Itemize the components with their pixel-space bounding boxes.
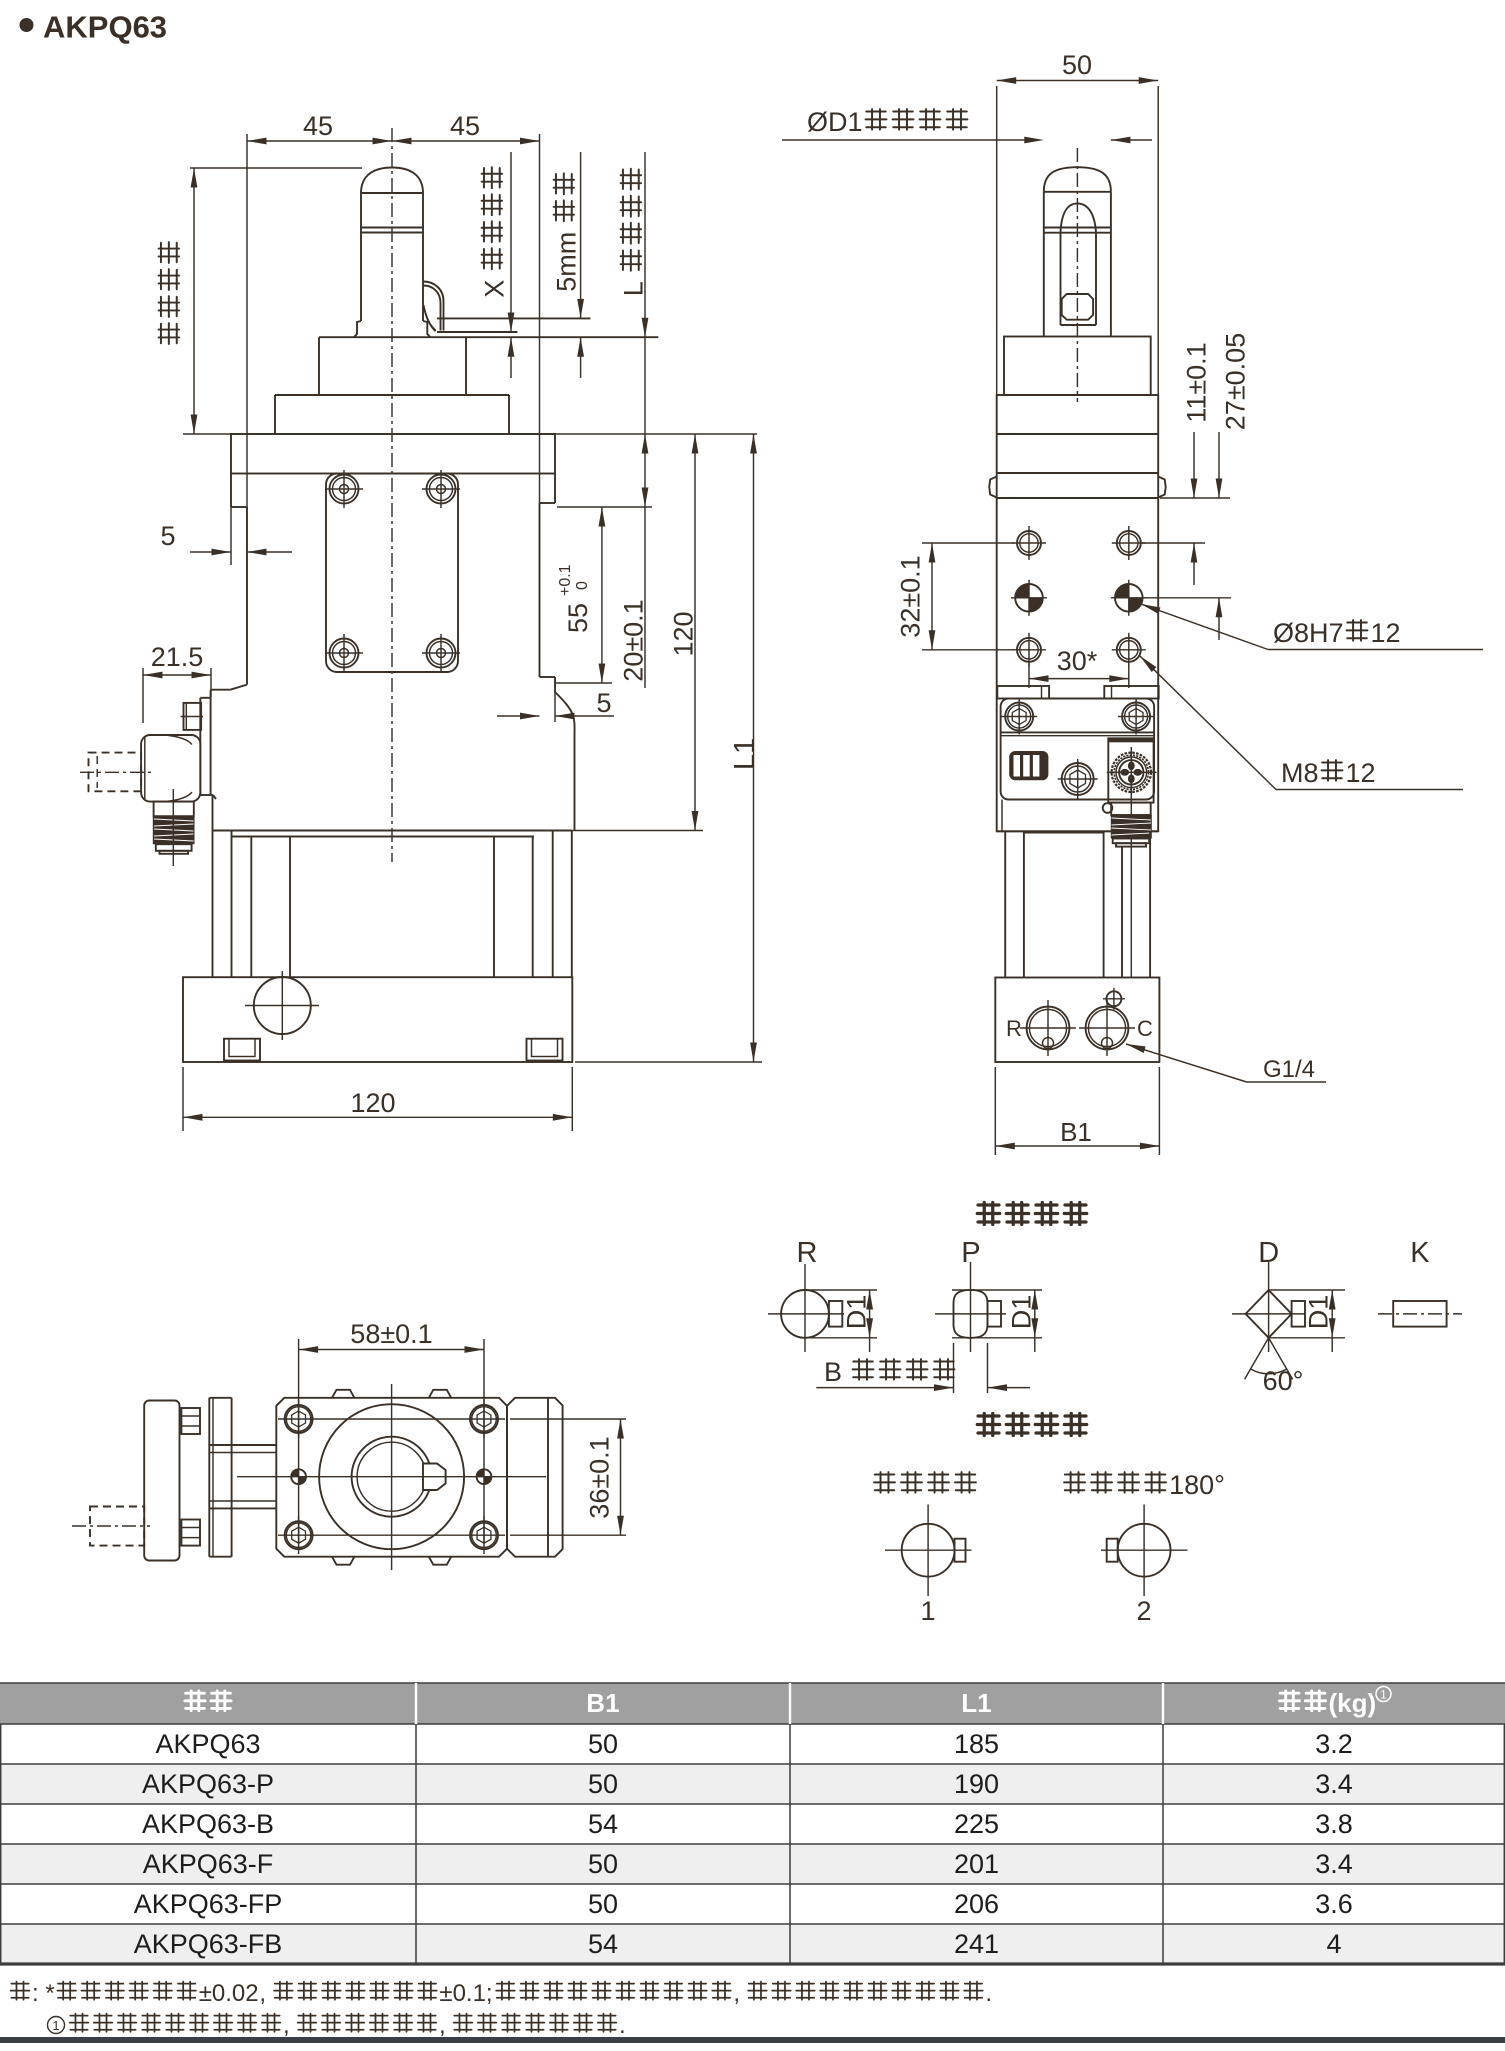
svg-text:50: 50 [588, 1849, 618, 1879]
svg-text:0: 0 [574, 581, 591, 590]
svg-text:3.6: 3.6 [1315, 1889, 1353, 1919]
svg-text:12: 12 [1346, 758, 1376, 788]
svg-text:4: 4 [1327, 1929, 1342, 1959]
svg-text:36±0.1: 36±0.1 [584, 1436, 614, 1518]
svg-text:L: L [618, 281, 648, 296]
svg-text:±0.1;: ±0.1; [439, 1980, 492, 2007]
svg-text:58±0.1: 58±0.1 [350, 1319, 432, 1349]
svg-text:120: 120 [668, 611, 698, 656]
svg-text:C: C [1137, 1016, 1153, 1041]
svg-text:G1/4: G1/4 [1263, 1056, 1315, 1083]
svg-text:201: 201 [954, 1849, 999, 1879]
svg-text:: *: : * [32, 1980, 55, 2007]
svg-text:21.5: 21.5 [151, 642, 204, 672]
svg-text:AKPQ63: AKPQ63 [43, 10, 167, 45]
svg-text:241: 241 [954, 1929, 999, 1959]
svg-text:5: 5 [597, 688, 612, 718]
svg-text:225: 225 [954, 1809, 999, 1839]
svg-text:K: K [1410, 1237, 1430, 1269]
svg-text:180°: 180° [1169, 1470, 1225, 1500]
svg-text:(kg): (kg) [1329, 1688, 1377, 1718]
svg-text:ØD1: ØD1 [807, 107, 863, 137]
svg-text:,: , [733, 1980, 740, 2007]
svg-text:190: 190 [954, 1769, 999, 1799]
svg-text:±0.02: ±0.02 [199, 1980, 259, 2007]
svg-text:AKPQ63-F: AKPQ63-F [143, 1849, 274, 1879]
svg-text:,: , [259, 1980, 266, 2007]
svg-text:B: B [824, 1357, 842, 1387]
svg-text:B1: B1 [586, 1688, 619, 1718]
svg-text:D1: D1 [1303, 1295, 1333, 1330]
svg-text:11±0.1: 11±0.1 [1181, 342, 1211, 422]
svg-text:1: 1 [1380, 1688, 1387, 1702]
svg-text:32±0.1: 32±0.1 [895, 555, 925, 637]
svg-text:27±0.05: 27±0.05 [1220, 333, 1250, 430]
svg-text:3.8: 3.8 [1315, 1809, 1353, 1839]
svg-text:2: 2 [1137, 1596, 1152, 1626]
svg-text:30*: 30* [1057, 646, 1098, 676]
svg-text:3.4: 3.4 [1315, 1849, 1353, 1879]
svg-text:X: X [479, 280, 509, 298]
svg-text:12: 12 [1371, 618, 1401, 648]
svg-text:54: 54 [588, 1929, 618, 1959]
svg-text:3.4: 3.4 [1315, 1769, 1353, 1799]
svg-text:AKPQ63-FB: AKPQ63-FB [134, 1929, 283, 1959]
svg-text:45: 45 [450, 111, 480, 141]
svg-text:54: 54 [588, 1809, 618, 1839]
svg-text:55: 55 [563, 603, 593, 633]
svg-text:AKPQ63: AKPQ63 [156, 1729, 261, 1759]
svg-text:Ø8H7: Ø8H7 [1273, 618, 1344, 648]
svg-text:50: 50 [588, 1769, 618, 1799]
svg-text:D1: D1 [841, 1295, 871, 1330]
svg-text:45: 45 [303, 111, 333, 141]
svg-text:,: , [283, 2012, 290, 2039]
svg-text:.: . [619, 2012, 626, 2039]
svg-text:1: 1 [52, 2018, 59, 2033]
svg-text:185: 185 [954, 1729, 999, 1759]
svg-text:B1: B1 [1060, 1117, 1092, 1147]
svg-text:3.2: 3.2 [1315, 1729, 1353, 1759]
svg-text:50: 50 [588, 1729, 618, 1759]
svg-text:120: 120 [351, 1088, 396, 1118]
svg-text:5mm: 5mm [551, 232, 581, 292]
svg-text:50: 50 [1062, 50, 1092, 80]
svg-text:1: 1 [921, 1596, 936, 1626]
svg-text:,: , [439, 2012, 446, 2039]
svg-text:.: . [985, 1980, 992, 2007]
svg-text:L1: L1 [729, 738, 761, 770]
svg-text:D1: D1 [1006, 1295, 1036, 1330]
svg-text:AKPQ63-FP: AKPQ63-FP [134, 1889, 283, 1919]
svg-text:AKPQ63-B: AKPQ63-B [142, 1809, 274, 1839]
svg-text:M8: M8 [1281, 758, 1319, 788]
svg-text:+0.1: +0.1 [557, 564, 574, 596]
svg-text:R: R [1006, 1016, 1022, 1041]
svg-text:AKPQ63-P: AKPQ63-P [142, 1769, 274, 1799]
svg-text:60°: 60° [1263, 1366, 1304, 1396]
svg-text:R: R [797, 1237, 818, 1269]
svg-text:206: 206 [954, 1889, 999, 1919]
svg-text:L1: L1 [961, 1688, 991, 1718]
svg-text:20±0.1: 20±0.1 [618, 599, 648, 681]
svg-text:5: 5 [161, 521, 176, 551]
svg-text:50: 50 [588, 1889, 618, 1919]
